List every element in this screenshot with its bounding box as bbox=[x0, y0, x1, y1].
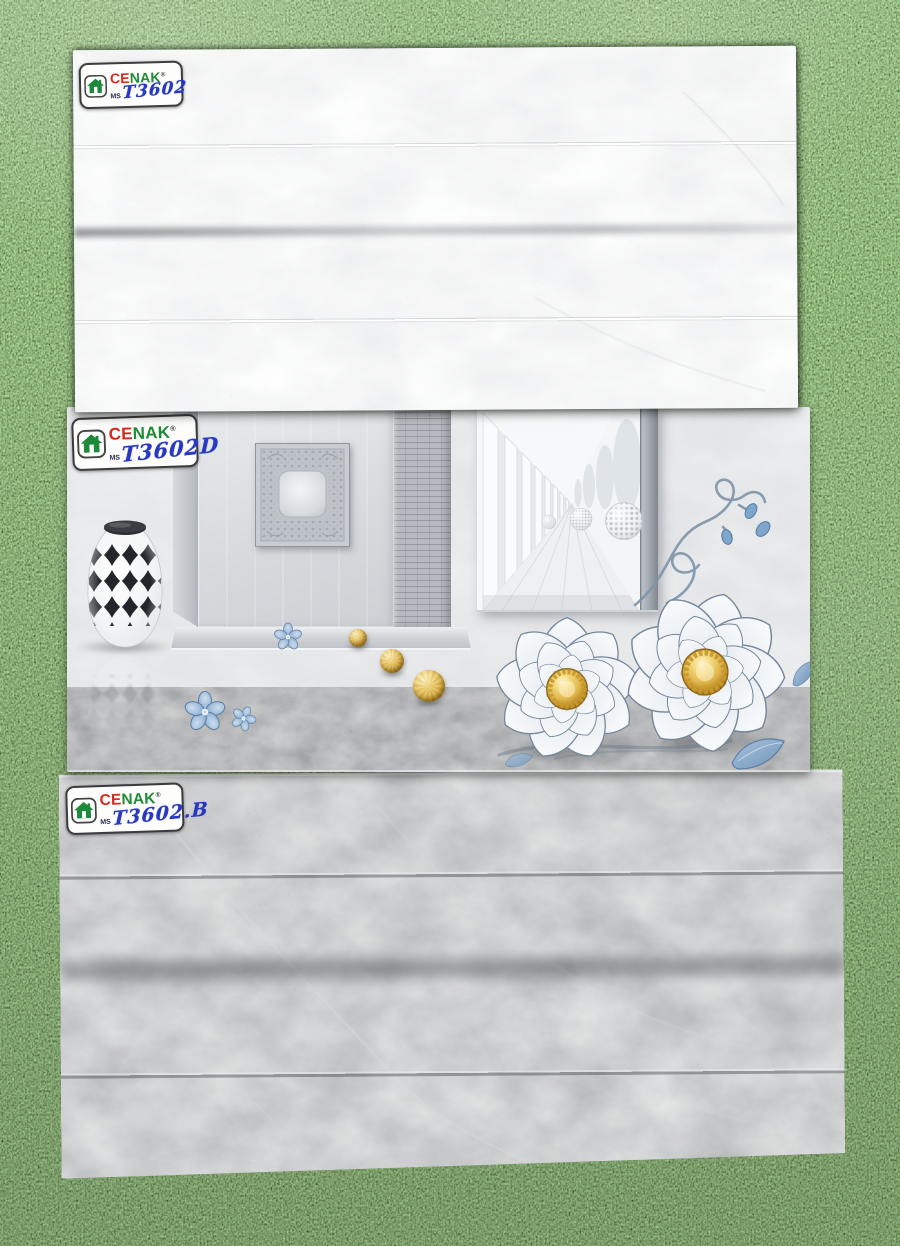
brick-pilaster bbox=[394, 407, 451, 628]
code-line: MST3602D bbox=[109, 437, 219, 462]
relief-medallion bbox=[255, 443, 350, 547]
ms-prefix: MS bbox=[100, 819, 111, 826]
blue-blossom-large bbox=[183, 690, 227, 734]
cenak-house-logo-icon bbox=[84, 74, 108, 98]
ms-prefix: MS bbox=[109, 454, 120, 461]
tile-bottom-dark-marble: CENAK® MST3602.B bbox=[59, 769, 846, 1178]
tile-middle-decor: CENAK® MST3602D bbox=[67, 407, 810, 772]
gold-sphere-large bbox=[413, 670, 445, 702]
brand-sticker: CENAK® MST3602D bbox=[71, 414, 199, 471]
lattice-vase bbox=[85, 516, 165, 650]
photo-ceramic-tiles-on-grass: CENAK® MST3602 bbox=[0, 0, 900, 1246]
blue-leaf bbox=[728, 733, 788, 772]
brand-sticker: CENAK® MST3602.B bbox=[65, 782, 185, 835]
gold-sphere-medium bbox=[380, 649, 404, 673]
code-line: MST3602.B bbox=[100, 803, 209, 826]
blue-blossom-floor bbox=[273, 622, 303, 652]
ms-prefix: MS bbox=[110, 93, 121, 100]
tile-top-light-marble: CENAK® MST3602 bbox=[73, 46, 798, 412]
cenak-house-logo-icon bbox=[77, 429, 107, 459]
panel-sill bbox=[171, 627, 471, 650]
gold-sphere-small bbox=[349, 629, 367, 647]
code-line: MST3602 bbox=[110, 81, 187, 100]
brand-sticker: CENAK® MST3602 bbox=[79, 60, 184, 109]
vase-reflection bbox=[85, 651, 165, 743]
tile-code: T3602 bbox=[122, 79, 187, 102]
cenak-house-logo-icon bbox=[70, 797, 97, 824]
